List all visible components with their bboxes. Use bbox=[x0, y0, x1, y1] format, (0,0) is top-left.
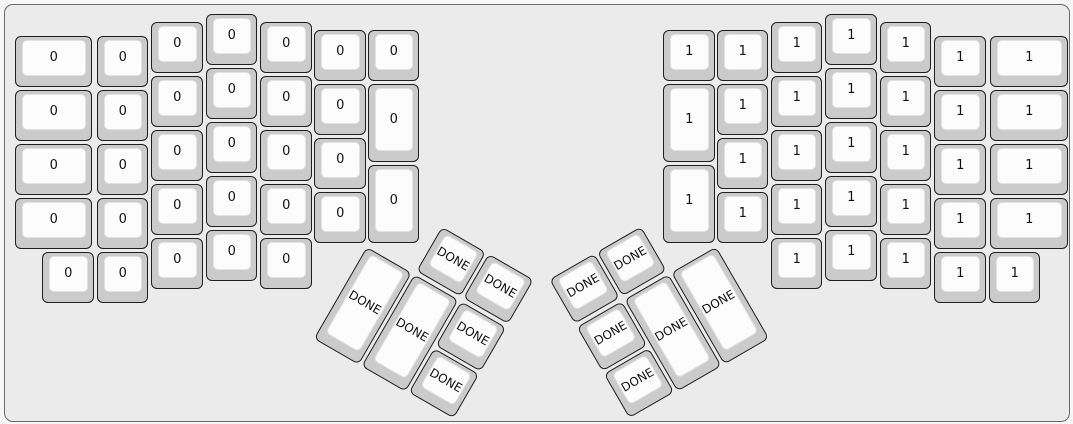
keycap-face: 1 bbox=[997, 94, 1062, 130]
keycap[interactable]: 1 bbox=[717, 192, 769, 243]
keycap[interactable]: 0 bbox=[151, 76, 203, 127]
keycap[interactable]: 1 bbox=[880, 238, 932, 289]
keycap-label: 1 bbox=[793, 253, 801, 266]
keycap-label: 1 bbox=[739, 99, 747, 112]
keycap-label: DONE bbox=[434, 245, 471, 273]
keycap-face: 0 bbox=[22, 202, 87, 238]
keycap-face: 0 bbox=[267, 26, 306, 62]
keycap-label: 0 bbox=[228, 137, 236, 150]
keycap[interactable]: 1 bbox=[880, 184, 932, 235]
keycap[interactable]: 0 bbox=[15, 144, 93, 195]
keycap-label: 0 bbox=[50, 159, 58, 172]
keycap[interactable]: 0 bbox=[260, 238, 312, 289]
keycap-label: 0 bbox=[228, 245, 236, 258]
keycap-label: 0 bbox=[282, 37, 290, 50]
keycap[interactable]: 0 bbox=[15, 90, 93, 141]
keycap-face: 0 bbox=[213, 234, 252, 270]
keycap-face: 0 bbox=[22, 148, 87, 184]
keycap-face: 1 bbox=[997, 148, 1062, 184]
keycap-label: 0 bbox=[64, 267, 72, 280]
keycap-face: 1 bbox=[887, 242, 926, 278]
keycap-label: 0 bbox=[119, 213, 127, 226]
keycap-face: 1 bbox=[887, 26, 926, 62]
keycap[interactable]: 0 bbox=[206, 176, 258, 227]
keycap-label: DONE bbox=[619, 366, 656, 394]
keycap-label: 0 bbox=[173, 199, 181, 212]
keycap[interactable]: 1 bbox=[825, 68, 877, 119]
keycap-face: 0 bbox=[213, 126, 252, 162]
keycap-face: 0 bbox=[267, 188, 306, 224]
keycap-label: 0 bbox=[282, 199, 290, 212]
keycap[interactable]: 1 bbox=[771, 238, 823, 289]
keycap-label: DONE bbox=[346, 288, 383, 316]
keycap-face: 0 bbox=[213, 180, 252, 216]
keycap-face: 0 bbox=[321, 142, 360, 178]
keycap-label: DONE bbox=[592, 319, 629, 347]
keycap[interactable]: 1 bbox=[825, 14, 877, 65]
keycap[interactable]: 0 bbox=[260, 130, 312, 181]
keycap[interactable]: 0 bbox=[314, 84, 366, 135]
keycap[interactable]: 0 bbox=[206, 68, 258, 119]
keycap-face: 1 bbox=[724, 34, 763, 70]
keycap-face: 1 bbox=[832, 72, 871, 108]
keycap-label: 0 bbox=[228, 29, 236, 42]
keycap-label: 1 bbox=[793, 199, 801, 212]
keycap-label: 0 bbox=[228, 83, 236, 96]
keycap[interactable]: 1 bbox=[825, 122, 877, 173]
keycap-face: 0 bbox=[158, 80, 197, 116]
keycap-label: 1 bbox=[1025, 159, 1033, 172]
keycap-label: 1 bbox=[847, 245, 855, 258]
keycap-face: 1 bbox=[670, 34, 709, 70]
keycap-label: DONE bbox=[700, 288, 737, 316]
keycap-face: 1 bbox=[941, 94, 980, 130]
keycap[interactable]: 0 bbox=[368, 84, 420, 162]
keycap-label: DONE bbox=[427, 366, 464, 394]
keycap[interactable]: 0 bbox=[260, 76, 312, 127]
keycap-face: 1 bbox=[941, 148, 980, 184]
keycap[interactable]: 1 bbox=[934, 198, 986, 249]
keycap-label: 1 bbox=[902, 91, 910, 104]
keycap-face: 0 bbox=[267, 134, 306, 170]
keycap-label: 0 bbox=[173, 145, 181, 158]
keycap[interactable]: 0 bbox=[151, 130, 203, 181]
keycap-label: 1 bbox=[847, 137, 855, 150]
keycap-face: 1 bbox=[832, 180, 871, 216]
keycap-face: 0 bbox=[158, 242, 197, 278]
keycap-face: 0 bbox=[49, 256, 88, 292]
keycap[interactable]: 0 bbox=[151, 184, 203, 235]
keycap-label: 1 bbox=[793, 91, 801, 104]
keycap-face: 1 bbox=[778, 188, 817, 224]
keycap-label: DONE bbox=[454, 319, 491, 347]
keycap[interactable]: 1 bbox=[989, 252, 1041, 303]
keycap-label: 1 bbox=[685, 113, 693, 126]
keycap-label: 1 bbox=[739, 207, 747, 220]
keycap-label: 0 bbox=[390, 113, 398, 126]
keycap-face: 0 bbox=[321, 34, 360, 70]
keycap-label: 1 bbox=[1025, 51, 1033, 64]
keycap[interactable]: 0 bbox=[97, 36, 149, 87]
keycap-face: 0 bbox=[104, 40, 143, 76]
keycap-label: 1 bbox=[956, 105, 964, 118]
keycap[interactable]: 0 bbox=[260, 184, 312, 235]
keycap[interactable]: 1 bbox=[717, 84, 769, 135]
keycap-face: 0 bbox=[375, 34, 414, 70]
keycap-label: 0 bbox=[50, 51, 58, 64]
keycap[interactable]: 0 bbox=[97, 198, 149, 249]
keycap-face: 1 bbox=[941, 40, 980, 76]
keycap[interactable]: 0 bbox=[151, 22, 203, 73]
keycap-label: 0 bbox=[119, 267, 127, 280]
keycap-label: 1 bbox=[1011, 267, 1019, 280]
keycap-label: 1 bbox=[902, 37, 910, 50]
keycap-face: 0 bbox=[104, 94, 143, 130]
keycap[interactable]: 0 bbox=[151, 238, 203, 289]
keycap[interactable]: 0 bbox=[206, 230, 258, 281]
keycap-face: 0 bbox=[158, 188, 197, 224]
keycap-face: 1 bbox=[941, 202, 980, 238]
keycap-label: 1 bbox=[956, 213, 964, 226]
keycap-face: DONE bbox=[420, 355, 471, 405]
keycap[interactable]: 0 bbox=[368, 30, 420, 81]
keycap[interactable]: 0 bbox=[97, 144, 149, 195]
keycap-face: DONE bbox=[427, 234, 478, 284]
keycap-face: 1 bbox=[996, 256, 1035, 292]
keycap[interactable]: 1 bbox=[717, 30, 769, 81]
keycap-label: DONE bbox=[612, 244, 649, 272]
keycap-label: 0 bbox=[336, 45, 344, 58]
keycap-face: 1 bbox=[941, 256, 980, 292]
keycap-label: DONE bbox=[393, 316, 430, 344]
keycap-face: DONE bbox=[474, 261, 525, 311]
keycap-face: 0 bbox=[22, 94, 87, 130]
keycap-face: 0 bbox=[158, 134, 197, 170]
keycap[interactable]: 1 bbox=[663, 84, 715, 162]
keycap-label: 1 bbox=[739, 45, 747, 58]
keycap[interactable]: 1 bbox=[663, 30, 715, 81]
keycap[interactable]: 0 bbox=[42, 252, 94, 303]
keycap-face: 0 bbox=[321, 196, 360, 232]
keycap-face: 0 bbox=[22, 40, 87, 76]
keycap-face: 1 bbox=[832, 18, 871, 54]
keycap[interactable]: 0 bbox=[206, 122, 258, 173]
keycap[interactable]: 0 bbox=[15, 198, 93, 249]
keycap-face: 0 bbox=[104, 256, 143, 292]
keyboard-canvas: 0000000000000000000000000000000011111111… bbox=[4, 4, 1070, 422]
keycap[interactable]: 0 bbox=[314, 192, 366, 243]
keycap-label: 1 bbox=[902, 145, 910, 158]
keycap-label: DONE bbox=[653, 315, 690, 343]
keycap-label: 0 bbox=[173, 91, 181, 104]
keycap[interactable]: 0 bbox=[97, 252, 149, 303]
keycap[interactable]: 1 bbox=[934, 252, 986, 303]
keycap[interactable]: 1 bbox=[934, 144, 986, 195]
keycap[interactable]: 1 bbox=[880, 22, 932, 73]
keycap-face: 1 bbox=[724, 142, 763, 178]
keycap-label: 0 bbox=[282, 253, 290, 266]
keycap[interactable]: 1 bbox=[934, 36, 986, 87]
keycap-label: 0 bbox=[50, 105, 58, 118]
keycap-label: 0 bbox=[282, 145, 290, 158]
keycap-label: 0 bbox=[336, 207, 344, 220]
keycap-label: 0 bbox=[119, 105, 127, 118]
keycap-face: 1 bbox=[724, 88, 763, 124]
keycap-label: 1 bbox=[847, 83, 855, 96]
keycap[interactable]: 0 bbox=[260, 22, 312, 73]
keycap[interactable]: 1 bbox=[990, 36, 1068, 87]
keycap-face: 0 bbox=[158, 26, 197, 62]
keycap-face: DONE bbox=[585, 307, 636, 357]
keycap-label: 1 bbox=[956, 267, 964, 280]
keycap-face: 1 bbox=[832, 126, 871, 162]
keycap-label: 0 bbox=[173, 37, 181, 50]
keycap-label: 1 bbox=[1025, 105, 1033, 118]
keycap-face: 1 bbox=[887, 80, 926, 116]
keycap[interactable]: 1 bbox=[825, 176, 877, 227]
keycap-face: 1 bbox=[778, 26, 817, 62]
keycap-label: 1 bbox=[902, 253, 910, 266]
keycap-label: 1 bbox=[902, 199, 910, 212]
keycap-face: 1 bbox=[997, 202, 1062, 238]
keycap[interactable]: 1 bbox=[990, 90, 1068, 141]
keycap-face: DONE bbox=[612, 355, 663, 405]
keycap-face: 1 bbox=[887, 188, 926, 224]
keycap-label: 1 bbox=[847, 191, 855, 204]
keycap-face: 1 bbox=[778, 80, 817, 116]
keycap-face: 0 bbox=[104, 202, 143, 238]
keycap[interactable]: 1 bbox=[990, 198, 1068, 249]
keycap-face: 0 bbox=[104, 148, 143, 184]
keycap[interactable]: 0 bbox=[206, 14, 258, 65]
keycap[interactable]: 1 bbox=[717, 138, 769, 189]
keycap-face: DONE bbox=[447, 308, 498, 358]
keycap-label: 0 bbox=[282, 91, 290, 104]
keycap[interactable]: 1 bbox=[880, 130, 932, 181]
keycap-face: 1 bbox=[887, 134, 926, 170]
keycap-label: 1 bbox=[739, 153, 747, 166]
keycap[interactable]: 1 bbox=[771, 22, 823, 73]
keycap-label: 1 bbox=[1025, 213, 1033, 226]
keycap-label: 0 bbox=[228, 191, 236, 204]
keycap[interactable]: 1 bbox=[771, 130, 823, 181]
keycap-face: 0 bbox=[375, 88, 414, 151]
keycap[interactable]: 1 bbox=[934, 90, 986, 141]
keycap-face: 1 bbox=[778, 242, 817, 278]
keycap-face: 0 bbox=[213, 18, 252, 54]
keycap-face: DONE bbox=[557, 260, 608, 310]
keycap[interactable]: 1 bbox=[771, 184, 823, 235]
keycap-label: 0 bbox=[173, 253, 181, 266]
keycap-face: 0 bbox=[267, 242, 306, 278]
keycap-label: 1 bbox=[685, 45, 693, 58]
keycap-label: 1 bbox=[956, 159, 964, 172]
keycap[interactable]: 1 bbox=[990, 144, 1068, 195]
keycap[interactable]: 0 bbox=[15, 36, 93, 87]
keycap-label: 0 bbox=[336, 153, 344, 166]
keycap-face: DONE bbox=[605, 233, 656, 283]
keycap-face: 1 bbox=[670, 88, 709, 151]
keycap-label: DONE bbox=[482, 272, 519, 300]
keycap-face: 0 bbox=[267, 80, 306, 116]
keycap-label: 1 bbox=[956, 51, 964, 64]
keycap-label: DONE bbox=[565, 271, 602, 299]
keycap[interactable]: 1 bbox=[771, 76, 823, 127]
keycap-label: 0 bbox=[119, 159, 127, 172]
keycap[interactable]: 1 bbox=[880, 76, 932, 127]
keycap-label: 1 bbox=[793, 145, 801, 158]
keycap-face: 1 bbox=[832, 234, 871, 270]
keycap-label: 0 bbox=[390, 45, 398, 58]
keycap[interactable]: 1 bbox=[825, 230, 877, 281]
keycap[interactable]: 0 bbox=[314, 30, 366, 81]
keycap-label: 0 bbox=[50, 213, 58, 226]
keycap-label: 1 bbox=[793, 37, 801, 50]
keycap[interactable]: 0 bbox=[97, 90, 149, 141]
keycap-label: 0 bbox=[119, 51, 127, 64]
keycap-face: 1 bbox=[724, 196, 763, 232]
keycap-label: 0 bbox=[336, 99, 344, 112]
keycap-face: 1 bbox=[778, 134, 817, 170]
keycap-face: 0 bbox=[213, 72, 252, 108]
keycap-face: 0 bbox=[321, 88, 360, 124]
keycap-label: 1 bbox=[847, 29, 855, 42]
keycap-face: 1 bbox=[997, 40, 1062, 76]
keycap[interactable]: 0 bbox=[314, 138, 366, 189]
